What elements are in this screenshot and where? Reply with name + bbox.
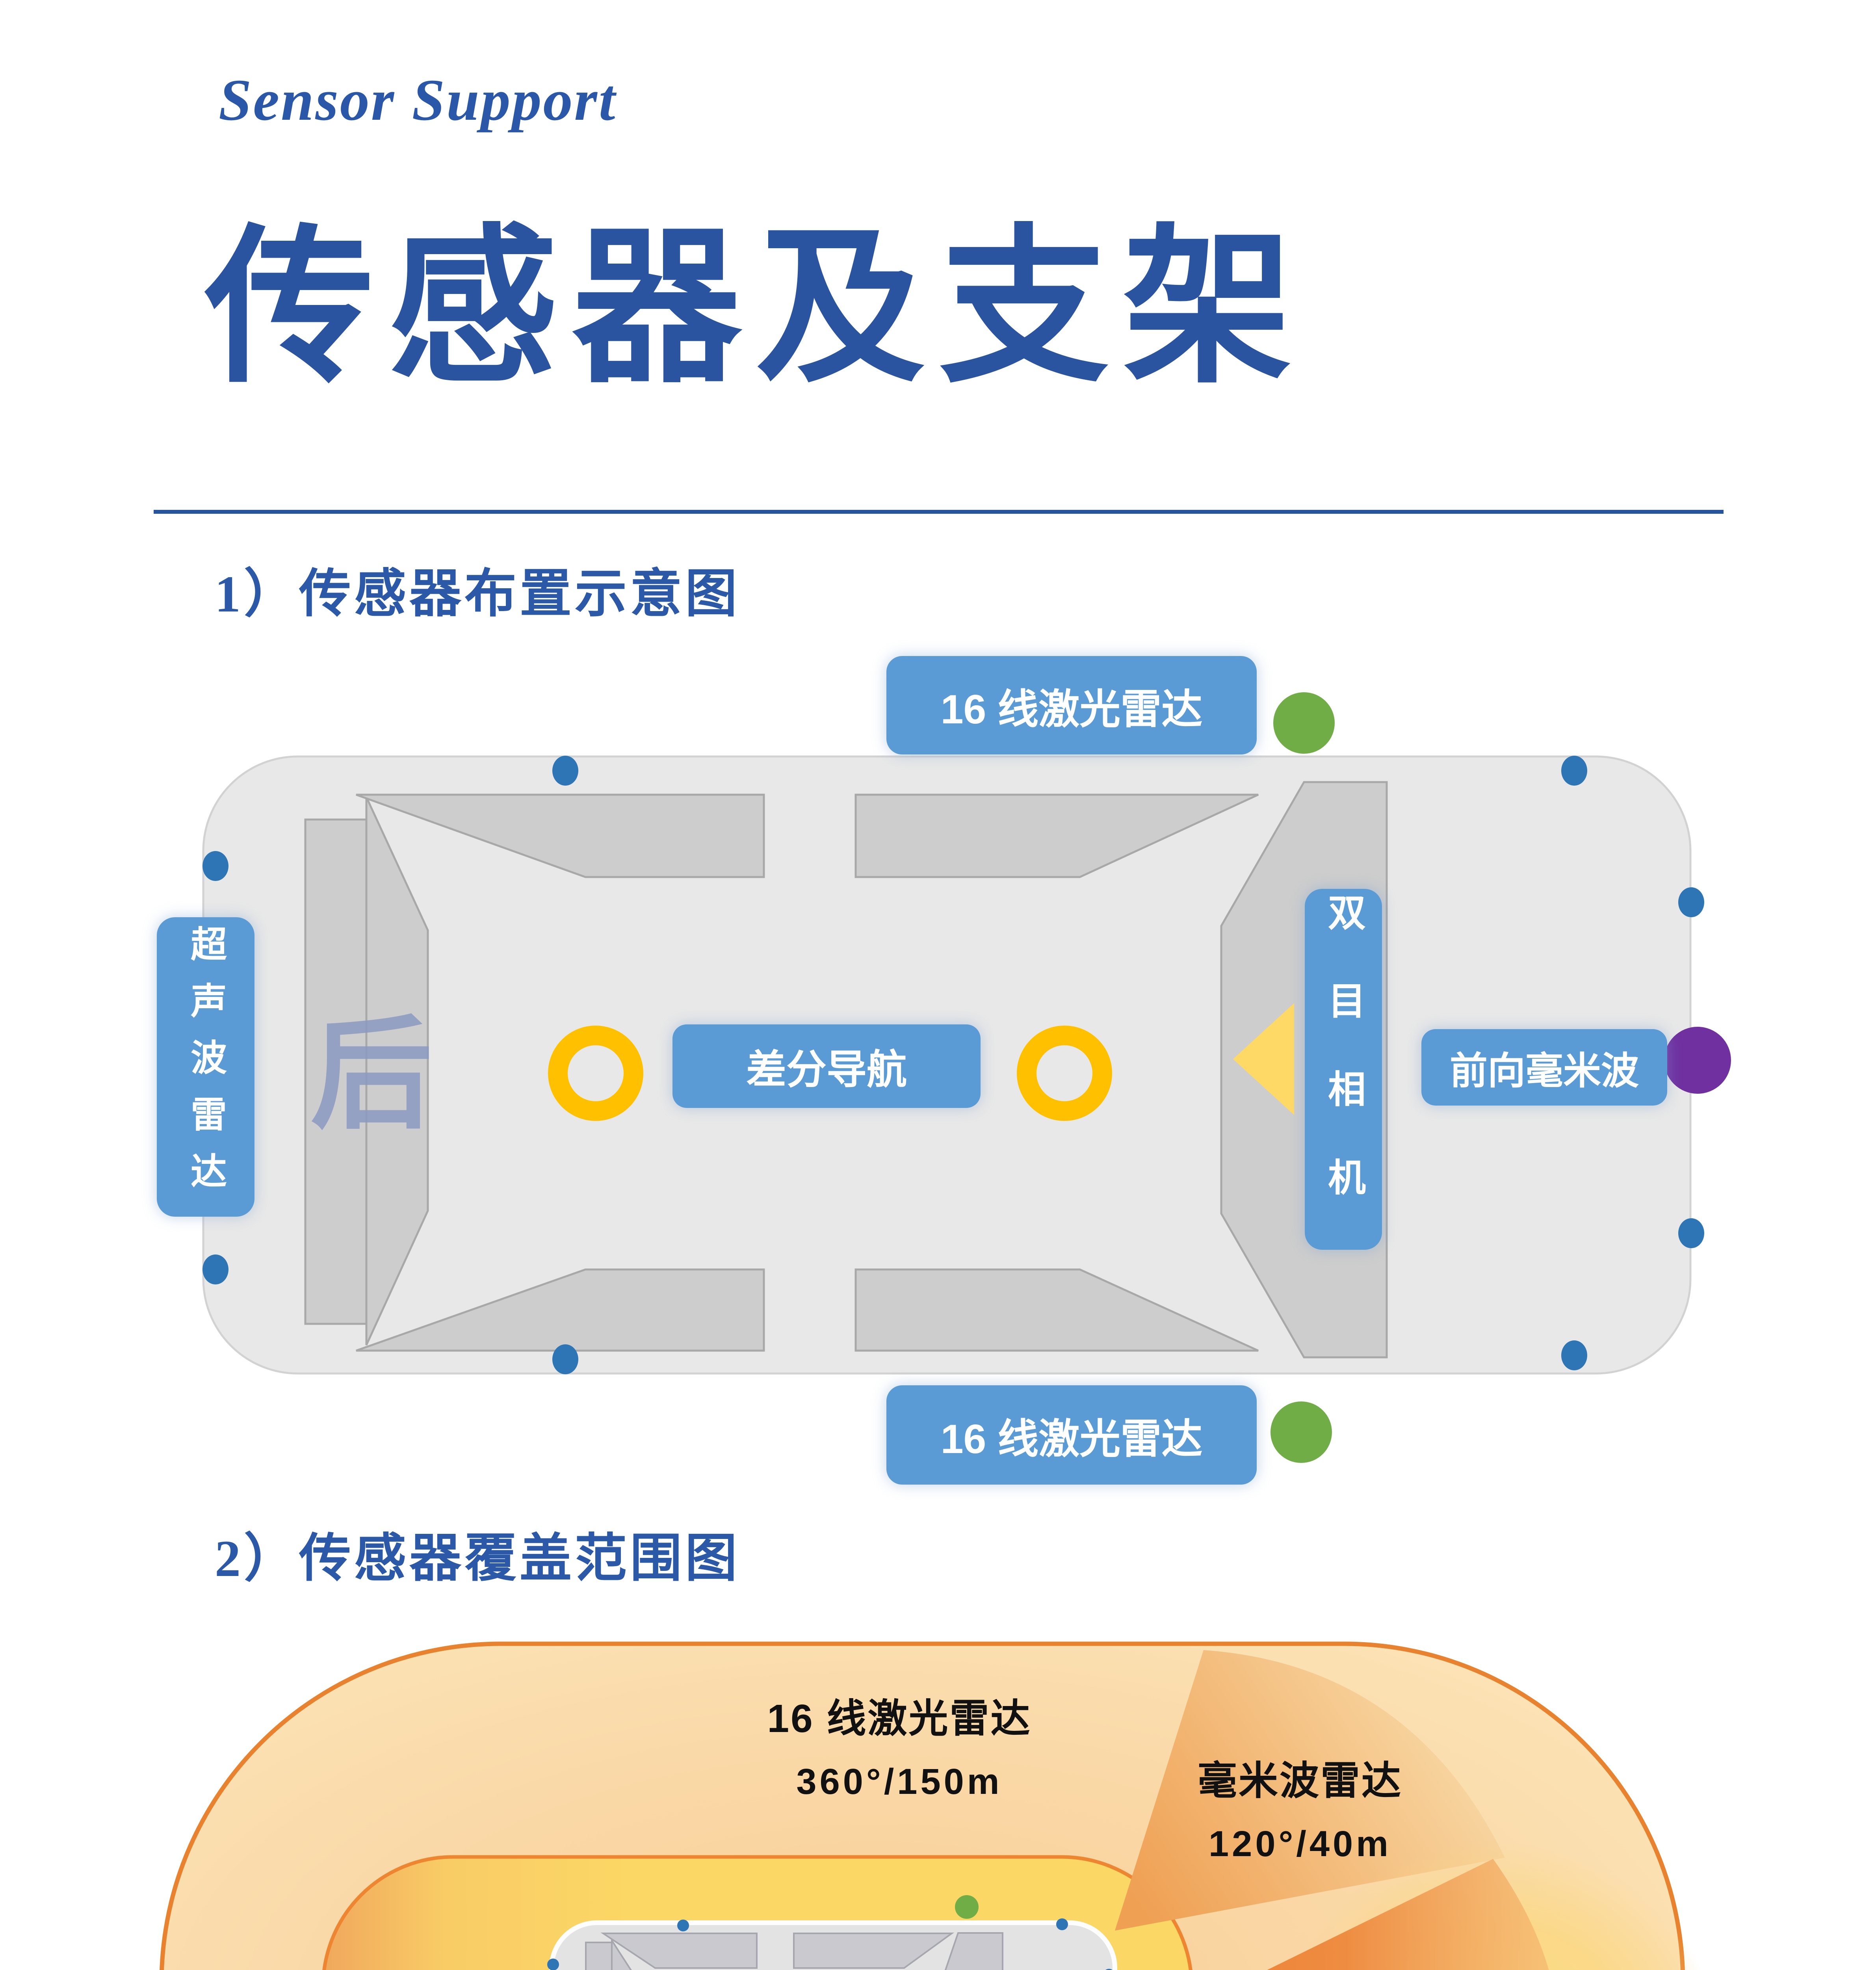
label-lidar-top: 16 线激光雷达 <box>886 656 1257 755</box>
ultrasonic-dot <box>1678 887 1704 917</box>
label-lidar-bottom: 16 线激光雷达 <box>886 1385 1257 1485</box>
page: Sensor Support 传感器及支架 1）传感器布置示意图 后 <box>0 0 1876 1970</box>
section1-heading: 1）传感器布置示意图 <box>215 552 740 627</box>
mini-ultrasonic-dot <box>547 1959 559 1970</box>
lidar-marker-top <box>1273 692 1335 754</box>
mini-rear-pillar <box>586 1942 612 1970</box>
label-differential-nav: 差分导航 <box>672 1024 981 1108</box>
ultrasonic-dot <box>1678 1218 1704 1248</box>
label-front-radar: 前向毫米波 <box>1421 1029 1667 1106</box>
label-stereo-camera: 双目相机 <box>1305 889 1382 1250</box>
mini-lidar-marker-top <box>955 1895 979 1919</box>
page-title: 传感器及支架 <box>205 221 1306 399</box>
coverage-spec: 120°/40m <box>1103 1823 1497 1865</box>
coverage-spec: 360°/150m <box>702 1761 1096 1803</box>
coverage-label-lidar-top: 16 线激光雷达 360°/150m <box>702 1686 1096 1803</box>
ultrasonic-dot <box>1561 756 1587 786</box>
ultrasonic-dot <box>202 1254 228 1284</box>
mini-ultrasonic-dot <box>677 1920 689 1931</box>
ultrasonic-dot <box>1561 1340 1587 1370</box>
coverage-name: 毫米波雷达 <box>1103 1749 1497 1806</box>
ultrasonic-dot <box>552 1344 578 1374</box>
ultrasonic-dot <box>202 851 228 881</box>
brand-logo-text: Sensor Support <box>219 66 617 134</box>
title-divider <box>154 510 1724 514</box>
ultrasonic-dot <box>552 756 578 786</box>
label-ultrasonic: 超声波雷达 <box>157 917 254 1217</box>
coverage-label-mmwave-top: 毫米波雷达 120°/40m <box>1103 1749 1497 1865</box>
lidar-marker-bottom <box>1270 1401 1332 1463</box>
front-radar-marker <box>1664 1027 1731 1094</box>
section2-heading: 2）传感器覆盖范围图 <box>215 1516 740 1591</box>
coverage-name: 16 线激光雷达 <box>702 1686 1096 1743</box>
mini-ultrasonic-dot <box>1056 1918 1068 1930</box>
rear-direction-text: 后 <box>310 1009 433 1144</box>
